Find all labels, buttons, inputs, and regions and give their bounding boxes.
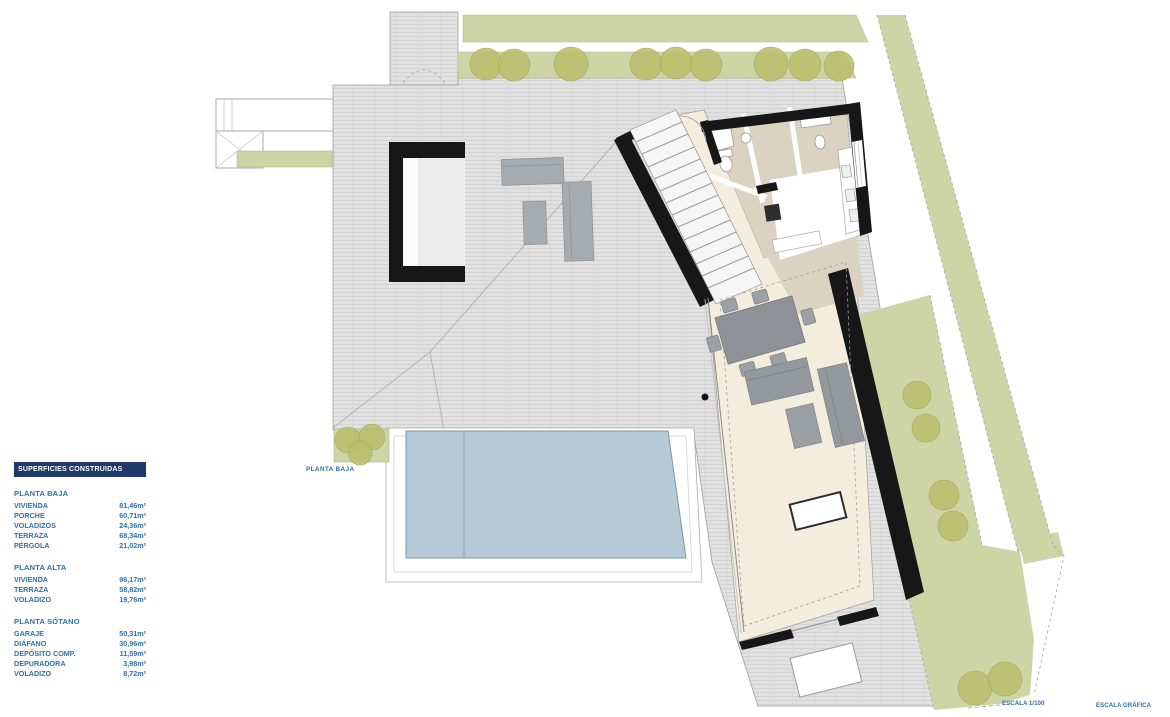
legend-row: VIVIENDA81,46m² bbox=[14, 501, 146, 511]
legend-row: DEPURADORA3,98m² bbox=[14, 659, 146, 669]
legend-section-planta-alta: PLANTA ALTA VIVIENDA96,17m² TERRAZA58,82… bbox=[14, 563, 146, 605]
legend-title: SUPERFICIES CONSTRUIDAS bbox=[14, 462, 146, 477]
legend-row: VOLADIZO8,72m² bbox=[14, 669, 146, 679]
legend-row: TERRAZA68,34m² bbox=[14, 531, 146, 541]
section-title: PLANTA ALTA bbox=[14, 563, 146, 572]
terrace-lounge bbox=[562, 181, 594, 261]
legend-row: PORCHE60,71m² bbox=[14, 511, 146, 521]
legend-section-planta-sotano: PLANTA SÓTANO GARAJE50,31m² DIÁFANO30,96… bbox=[14, 617, 146, 679]
green-strip-upper bbox=[463, 15, 868, 42]
scale-label: ESCALA 1/100 bbox=[1002, 700, 1044, 707]
legend-row: GARAJE50,31m² bbox=[14, 629, 146, 639]
legend-row: VOLADIZOS24,36m² bbox=[14, 521, 146, 531]
appliance bbox=[845, 189, 856, 202]
floor-plan-page: SUPERFICIES CONSTRUIDAS PLANTA BAJA VIVI… bbox=[0, 0, 1170, 717]
legend-row: VOLADIZO19,76m² bbox=[14, 595, 146, 605]
terrace-table bbox=[523, 201, 547, 245]
planter bbox=[334, 424, 389, 465]
green-strip-left bbox=[237, 151, 332, 167]
legend-row: DIÁFANO30,96m² bbox=[14, 639, 146, 649]
legend-row: TERRAZA58,82m² bbox=[14, 585, 146, 595]
section-title: PLANTA SÓTANO bbox=[14, 617, 146, 626]
column bbox=[702, 394, 709, 401]
legend-row: DEPÓSITO COMP.11,59m² bbox=[14, 649, 146, 659]
section-title: PLANTA BAJA bbox=[14, 489, 146, 498]
terrace-sofa bbox=[501, 157, 564, 185]
legend-row: VIVIENDA96,17m² bbox=[14, 575, 146, 585]
sink bbox=[741, 133, 751, 143]
pergola-structure bbox=[389, 142, 465, 282]
legend-section-planta-baja: PLANTA BAJA VIVIENDA81,46m² PORCHE60,71m… bbox=[14, 489, 146, 551]
pool bbox=[406, 431, 686, 558]
surfaces-legend: SUPERFICIES CONSTRUIDAS PLANTA BAJA VIVI… bbox=[14, 462, 146, 679]
floor-plan-drawing bbox=[0, 0, 1170, 717]
sink-appliance bbox=[841, 165, 852, 178]
graphic-scale-label: ESCALA GRÁFICA bbox=[1096, 702, 1151, 709]
plan-title-label: PLANTA BAJA bbox=[306, 466, 354, 473]
hob bbox=[764, 204, 781, 222]
legend-row: PÉRGOLA21,02m² bbox=[14, 541, 146, 551]
